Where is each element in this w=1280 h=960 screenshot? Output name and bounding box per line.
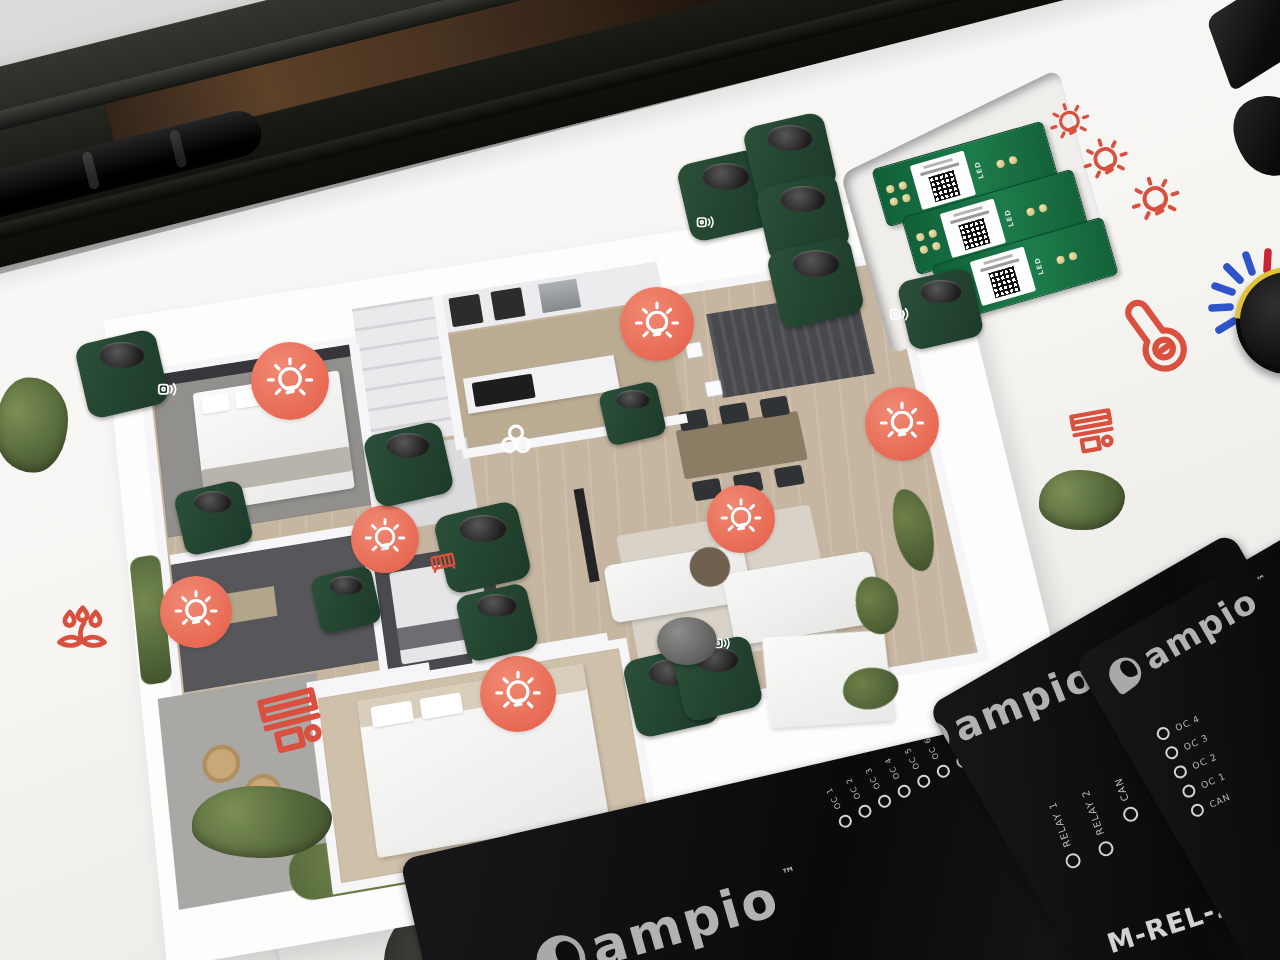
oven xyxy=(490,287,525,320)
pcb-silk-text: LED xyxy=(1003,208,1016,228)
led-indicator xyxy=(934,762,951,779)
solder-pads xyxy=(885,180,911,206)
push-button-knob[interactable] xyxy=(192,497,234,539)
temperature-dial xyxy=(1168,238,1280,378)
led-indicator xyxy=(1189,802,1206,819)
push-button-knob[interactable] xyxy=(918,286,964,332)
ampio-logo-mark xyxy=(1103,651,1148,696)
push-button-knob[interactable] xyxy=(765,132,815,182)
trademark: ™ xyxy=(1255,572,1269,586)
led-indicator xyxy=(895,782,912,799)
qr-label xyxy=(970,247,1037,307)
side-led-column: OC 4 OC 3 OC 2 OC 1 CAN xyxy=(1155,712,1236,819)
led-indicator xyxy=(1180,783,1197,800)
ampio-logo-mark xyxy=(529,927,593,960)
push-button-knob[interactable] xyxy=(700,170,752,222)
ampio-logo-text: ampio xyxy=(585,871,785,960)
oven xyxy=(448,294,483,327)
light-switch xyxy=(684,341,703,359)
solder-pads xyxy=(996,155,1018,168)
led-indicator xyxy=(856,802,873,819)
led-indicator xyxy=(836,812,853,829)
led-indicator xyxy=(1155,725,1172,742)
led-indicator xyxy=(1163,744,1180,761)
trademark: ™ xyxy=(780,864,801,883)
fridge xyxy=(538,279,581,314)
pcb-silk-text: LED xyxy=(973,160,986,180)
push-button-knob[interactable] xyxy=(693,654,741,702)
solder-pads xyxy=(1026,203,1048,216)
qr-code xyxy=(988,266,1020,298)
pcb-silk-text: LED xyxy=(1033,256,1046,276)
led-indicator xyxy=(1172,763,1189,780)
qr-code xyxy=(958,218,990,250)
push-button-knob[interactable] xyxy=(475,600,519,644)
push-button-knob[interactable] xyxy=(615,395,651,431)
solder-pads xyxy=(1056,251,1078,264)
relay-led-row: RELAY 1 RELAY 2 CAN xyxy=(1045,776,1149,871)
push-button-knob[interactable] xyxy=(384,440,432,488)
push-button-knob[interactable] xyxy=(97,349,147,399)
light-switch xyxy=(704,379,724,397)
led-indicator xyxy=(1096,839,1115,858)
ampio-logo: ampio™ xyxy=(530,864,811,960)
solder-pads xyxy=(915,228,941,254)
led-indicator xyxy=(1063,851,1082,870)
push-button-knob[interactable] xyxy=(790,257,842,309)
led-indicator xyxy=(915,772,932,789)
push-button-knob[interactable] xyxy=(327,581,365,619)
push-button-knob[interactable] xyxy=(457,522,509,574)
led-indicator xyxy=(1121,805,1140,824)
led-indicator xyxy=(876,792,893,809)
push-button-knob[interactable] xyxy=(778,193,828,243)
qr-code xyxy=(928,170,960,202)
